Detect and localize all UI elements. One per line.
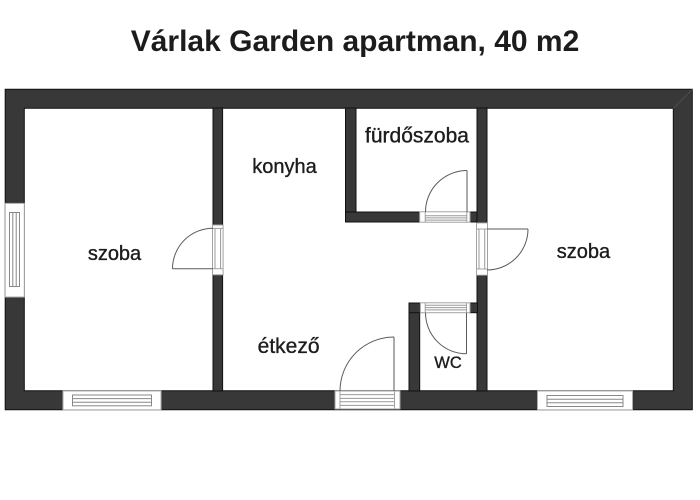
svg-text:szoba: szoba — [557, 241, 611, 263]
svg-text:WC: WC — [434, 354, 462, 372]
svg-text:konyha: konyha — [252, 156, 317, 178]
svg-text:fürdőszoba: fürdőszoba — [365, 125, 469, 148]
svg-text:Várlak Garden apartman, 40 m2: Várlak Garden apartman, 40 m2 — [131, 25, 580, 58]
svg-text:étkező: étkező — [258, 335, 320, 358]
svg-text:szoba: szoba — [88, 243, 142, 265]
